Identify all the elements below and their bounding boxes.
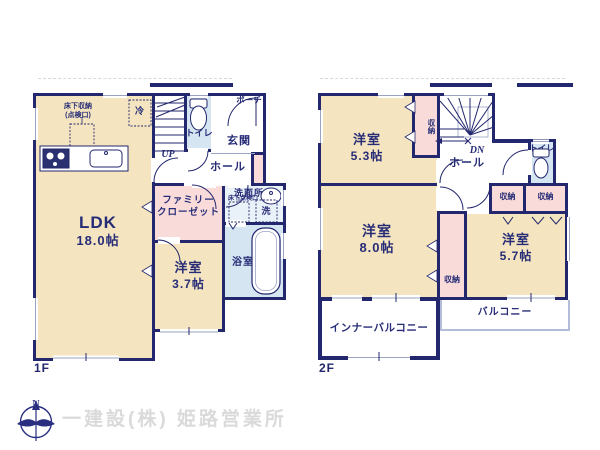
eave-line-2f <box>320 78 565 79</box>
floor2-label: 2F <box>319 362 349 376</box>
floor2-lineart <box>318 93 572 363</box>
eave-line-1f <box>38 78 232 79</box>
overhang-bar-2f-right <box>517 83 573 87</box>
floor1-lineart <box>33 93 286 361</box>
overhang-bar-2f-left <box>430 83 492 87</box>
floor1-label: 1F <box>34 362 64 376</box>
compass-icon: N <box>12 394 60 446</box>
floorplan-canvas: LDK 18.0帖 洋室 3.7帖 ファミリー クローゼット 浴室 洗面所 洗 … <box>0 0 600 450</box>
overhang-bar-1f <box>150 83 233 87</box>
company-name: 一建設(株) 姫路営業所 <box>62 404 287 431</box>
compass-n-label: N <box>32 398 40 410</box>
